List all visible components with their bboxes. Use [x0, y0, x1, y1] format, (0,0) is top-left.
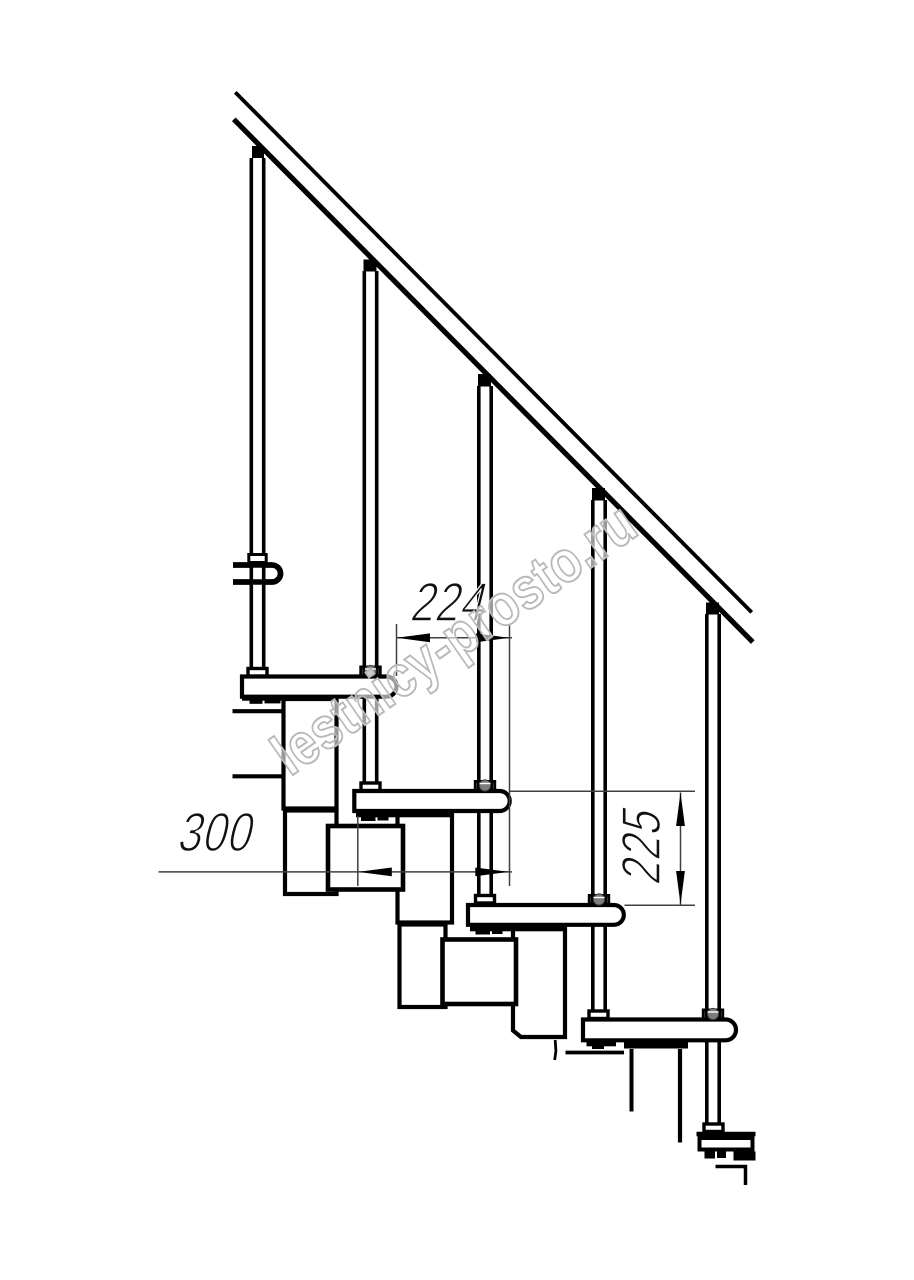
svg-text:225: 225: [611, 800, 672, 889]
svg-text:300: 300: [173, 802, 262, 863]
